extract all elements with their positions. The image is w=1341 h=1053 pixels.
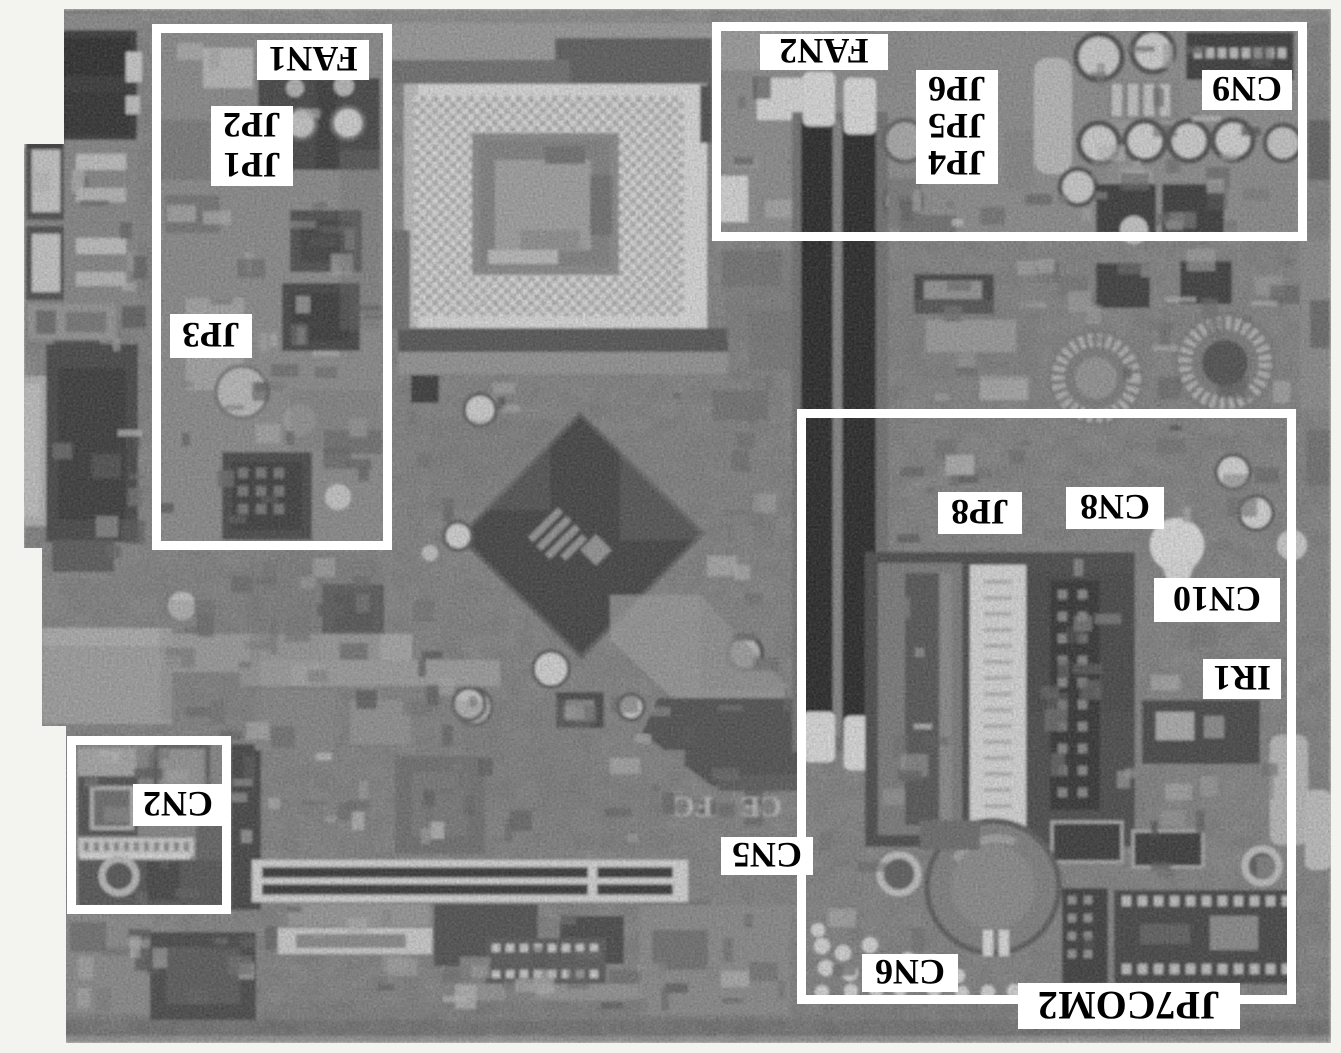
svg-text:JP2: JP2	[223, 105, 281, 145]
svg-text:FAN1: FAN1	[268, 39, 357, 79]
svg-text:CN8: CN8	[1080, 487, 1150, 527]
svg-text:IR1: IR1	[1213, 658, 1271, 698]
svg-text:JP7COM2: JP7COM2	[1038, 983, 1220, 1028]
svg-text:CN9: CN9	[1212, 69, 1282, 109]
svg-text:FAN2: FAN2	[779, 31, 868, 71]
svg-text:JP4: JP4	[928, 143, 986, 183]
svg-text:CN6: CN6	[875, 952, 945, 992]
svg-text:CN5: CN5	[732, 835, 802, 875]
svg-text:JP1: JP1	[223, 145, 281, 185]
svg-text:JP8: JP8	[951, 492, 1009, 532]
svg-text:JP6: JP6	[928, 69, 986, 109]
svg-text:JP5: JP5	[928, 106, 986, 146]
svg-text:JP3: JP3	[182, 315, 240, 355]
svg-text:CN2: CN2	[143, 784, 213, 824]
svg-text:CN10: CN10	[1173, 579, 1261, 619]
